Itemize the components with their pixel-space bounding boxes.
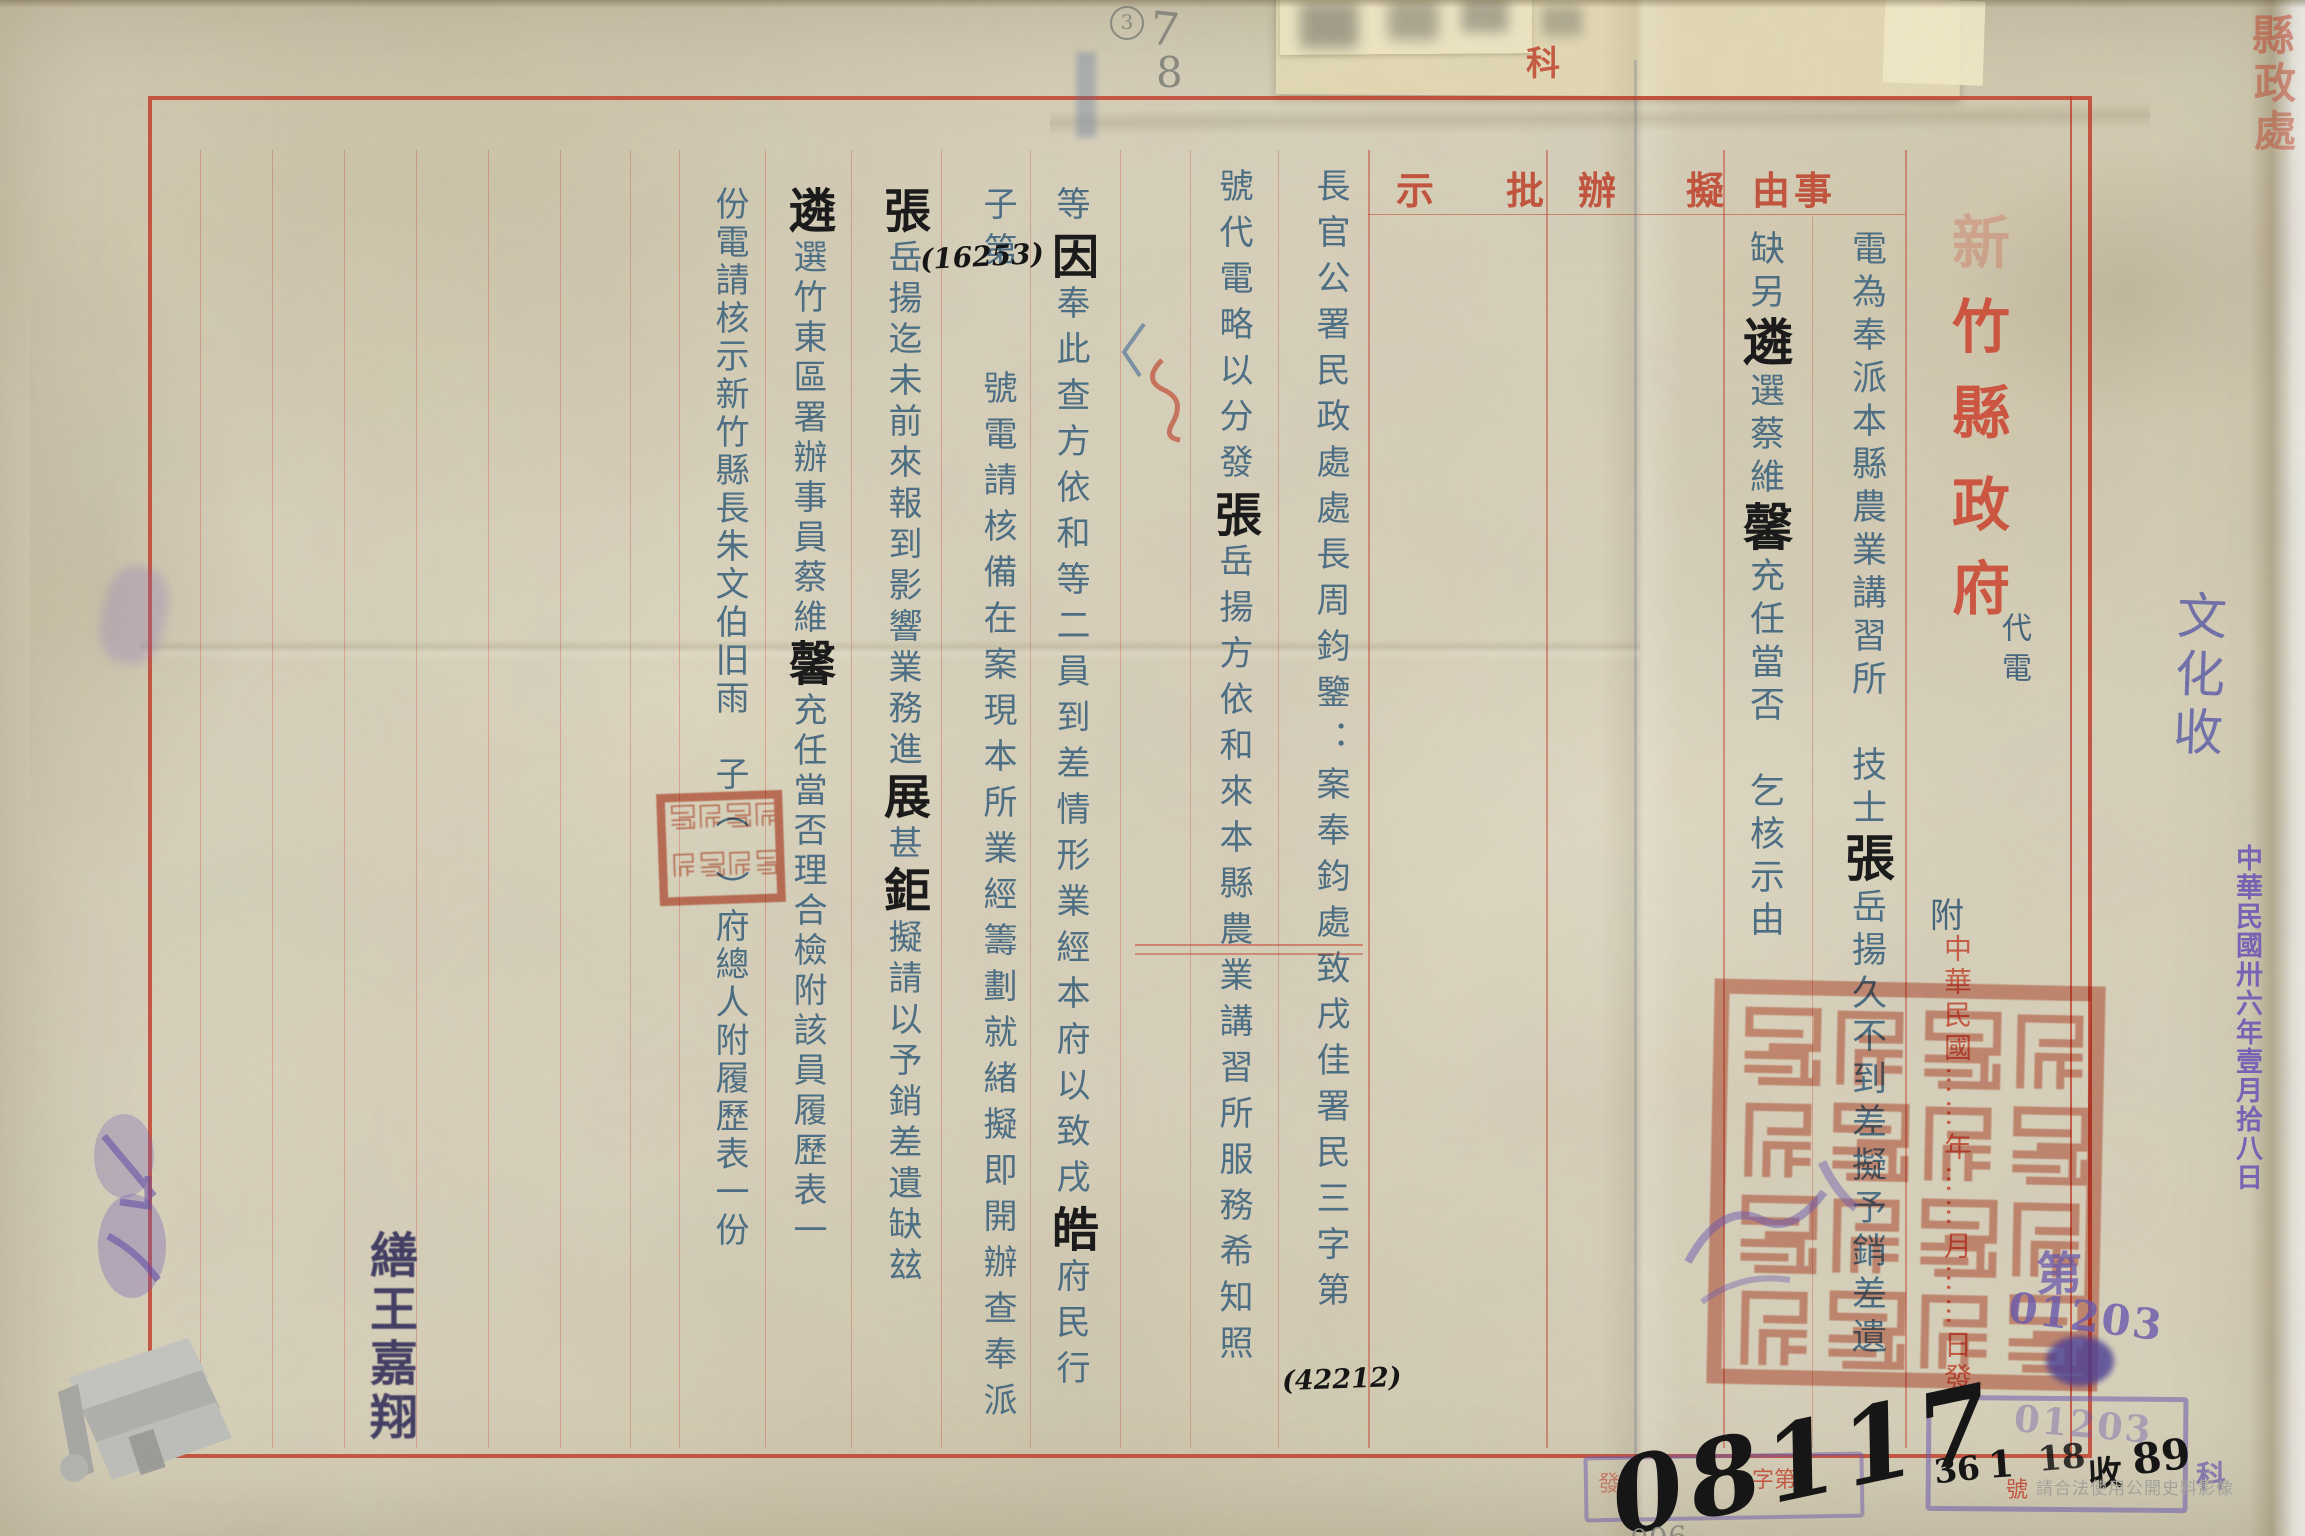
paper-mottle	[0, 0, 2305, 1536]
document-scan: 示 批 辦 擬 由 事 新 竹 縣 政 府 代電 附 中華民國……年……月……日…	[0, 0, 2305, 1536]
